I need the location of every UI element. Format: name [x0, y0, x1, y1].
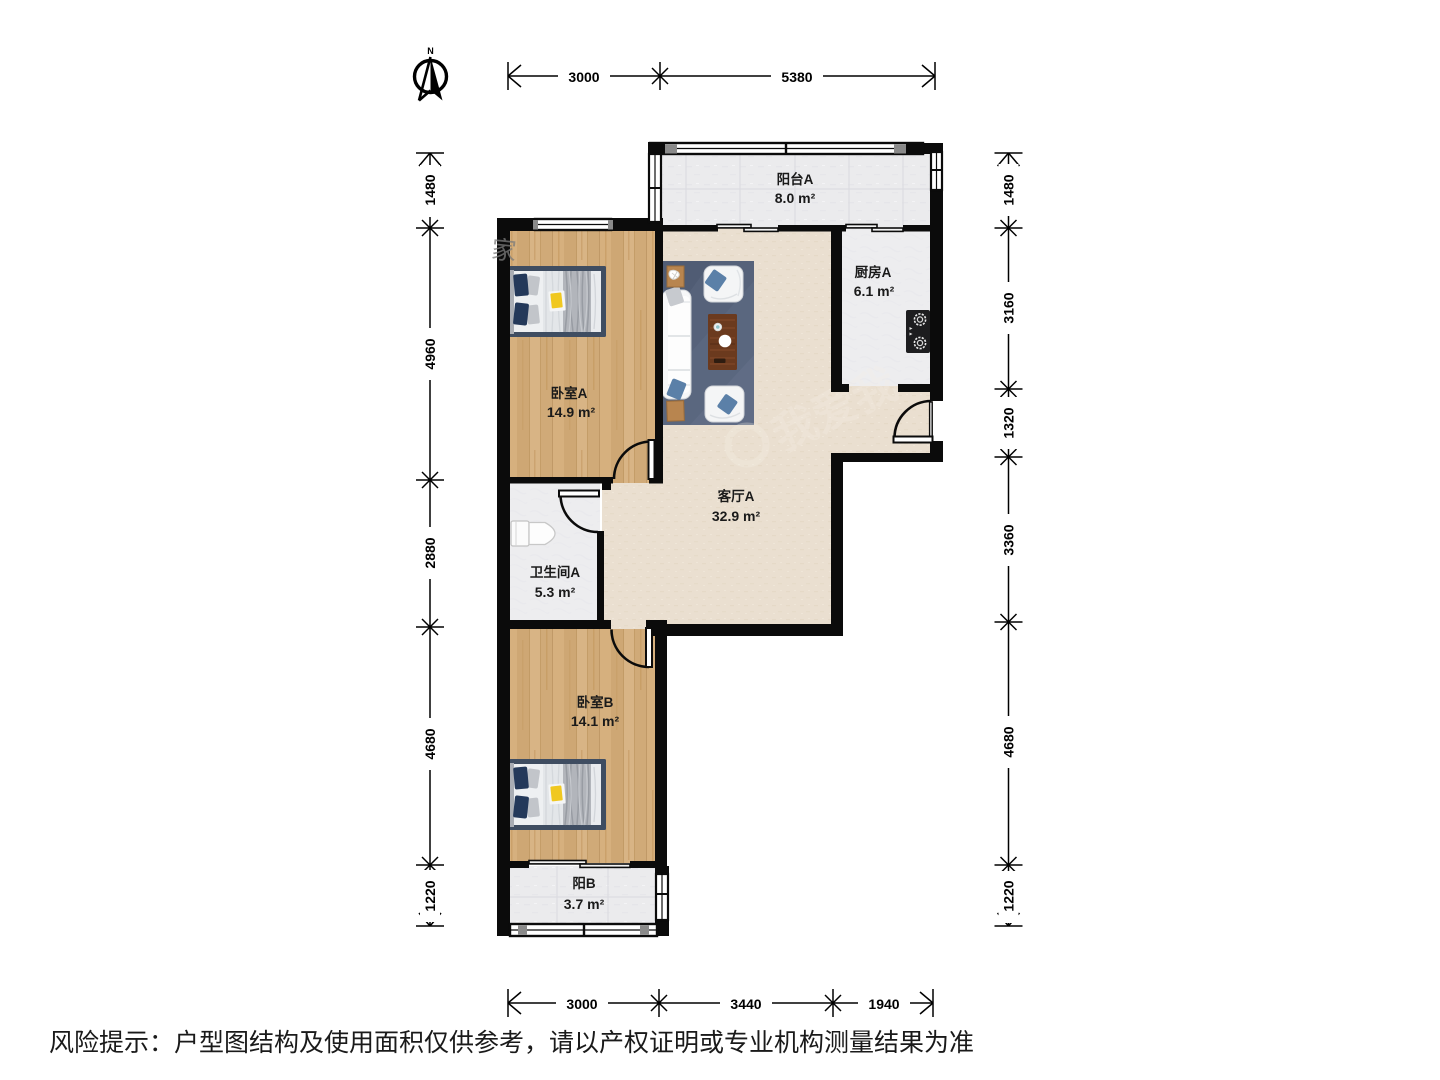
svg-text:家: 家: [490, 236, 518, 266]
svg-text:14.1 m²: 14.1 m²: [571, 713, 620, 729]
svg-text:3.7 m²: 3.7 m²: [564, 896, 605, 912]
svg-text:4680: 4680: [1001, 726, 1017, 757]
svg-text:6.1 m²: 6.1 m²: [854, 283, 895, 299]
svg-text:4680: 4680: [422, 728, 438, 759]
svg-text:3440: 3440: [730, 996, 761, 1012]
svg-text:3360: 3360: [1001, 524, 1017, 555]
svg-text:1940: 1940: [868, 996, 899, 1012]
svg-text:阳B: 阳B: [572, 876, 596, 891]
svg-text:1220: 1220: [422, 880, 438, 911]
svg-text:1220: 1220: [1001, 880, 1017, 911]
svg-text:卧室B: 卧室B: [577, 694, 614, 710]
svg-text:5.3 m²: 5.3 m²: [535, 584, 576, 600]
svg-text:卫生间A: 卫生间A: [530, 564, 580, 580]
svg-text:1320: 1320: [1001, 407, 1017, 438]
svg-text:4960: 4960: [422, 338, 438, 369]
svg-text:N: N: [427, 46, 434, 56]
svg-text:厨房A: 厨房A: [855, 264, 892, 280]
svg-text:3000: 3000: [568, 69, 599, 85]
svg-text:14.9 m²: 14.9 m²: [547, 404, 596, 420]
svg-text:风险提示：户型图结构及使用面积仅供参考，请以产权证明或专业机: 风险提示：户型图结构及使用面积仅供参考，请以产权证明或专业机构测量结果为准: [49, 1029, 974, 1057]
svg-text:卧室A: 卧室A: [551, 385, 588, 401]
svg-text:5380: 5380: [781, 69, 812, 85]
svg-text:3000: 3000: [566, 996, 597, 1012]
svg-text:8.0 m²: 8.0 m²: [775, 190, 816, 206]
svg-text:客厅A: 客厅A: [717, 488, 755, 504]
svg-text:3160: 3160: [1001, 292, 1017, 323]
svg-text:32.9 m²: 32.9 m²: [712, 508, 761, 524]
svg-text:阳台A: 阳台A: [777, 171, 814, 187]
svg-text:1480: 1480: [422, 174, 438, 205]
svg-text:2880: 2880: [422, 537, 438, 568]
svg-text:1480: 1480: [1001, 174, 1017, 205]
